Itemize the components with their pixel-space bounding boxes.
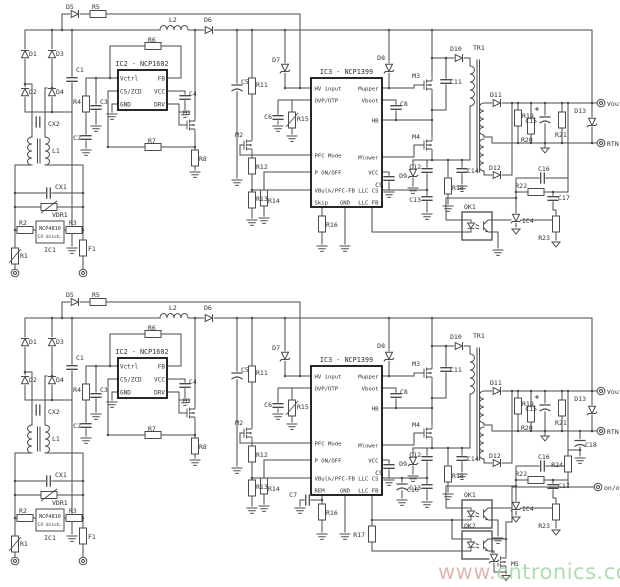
watermark: www.cntronics.com — [438, 560, 620, 584]
label-r24: R24 — [551, 461, 563, 469]
top-circuit-graphics — [9, 10, 605, 277]
label-c7: C7 — [289, 491, 297, 499]
watermark-rest: cntronics.com — [496, 560, 620, 584]
schematic-page: D1 D3 D2 D4 C1 CX2 L1 CX1 VDR1 R2 R3 R1 … — [0, 0, 620, 587]
bottom-circuit — [9, 291, 620, 565]
label-ok2: OK2 — [464, 522, 476, 530]
ic3-pin-mode-bottom: REM — [315, 489, 326, 495]
bottom-circuit-graphics — [9, 298, 605, 565]
schematic-canvas: D1 D3 D2 D4 C1 CX2 L1 CX1 VDR1 R2 R3 R1 … — [0, 0, 620, 587]
ic3-pin-mode-top: Skip — [315, 201, 329, 207]
label-onoff: on/off — [604, 484, 620, 492]
label-c18: C18 — [585, 441, 597, 449]
label-c10: C10 — [407, 486, 419, 494]
label-r17: R17 — [353, 531, 365, 539]
watermark-prefix: www. — [438, 560, 496, 584]
top-circuit: Skip — [9, 3, 620, 277]
